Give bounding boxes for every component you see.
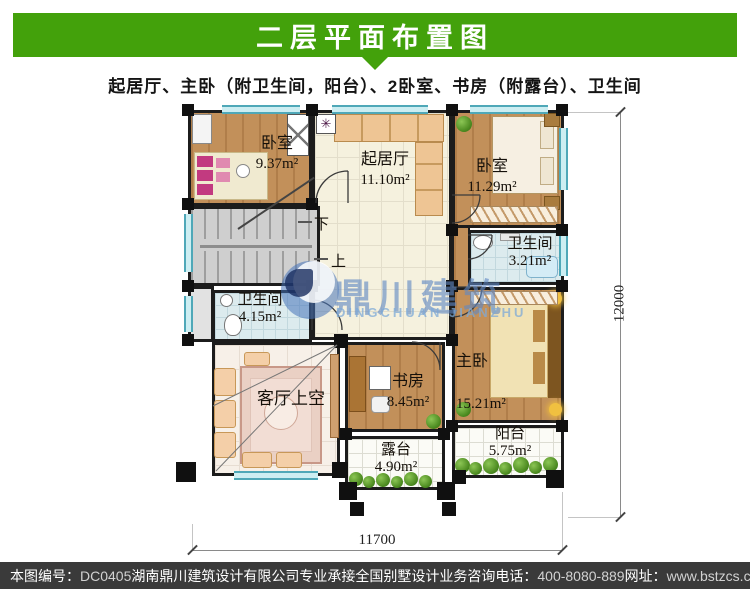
stair-tick-up [314,258,328,260]
header-banner: 二层平面布置图 [13,13,737,57]
watermark-logo [281,261,339,319]
page-canvas: 二层平面布置图 起居厅、主卧（附卫生间，阳台）、2卧室、书房（附露台）、卫生间 … [0,0,750,589]
dim-label-bottom: 11700 [347,532,407,549]
stair-tick-down [298,221,312,223]
footer-phone: 咨询电话：400-8080-889 [467,566,624,586]
footer-company: 湖南鼎川建筑设计有限公司专业承接全国别墅设计业务 [131,566,467,586]
footer-plan-number: 本图编号：DC0405 [10,566,131,586]
label-void-living: 客厅上空 [236,388,346,410]
footer-bar: 本图编号：DC0405 湖南鼎川建筑设计有限公司专业承接全国别墅设计业务 咨询电… [0,562,750,589]
page-title: 二层平面布置图 [256,16,494,55]
plan-summary-text: 起居厅、主卧（附卫生间，阳台）、2卧室、书房（附露台）、卫生间 [0,72,750,97]
watermark-en-text: DINGCHUAN JIANZHU [336,305,556,320]
stair-label-down: 下 [314,213,329,234]
door-arc [468,235,492,259]
footer-website: 网址：www.bstzcs.com [625,566,750,586]
label-bedroom-tr: 卧室 11.29m² [450,157,534,197]
label-living: 起居厅 11.10m² [335,150,435,190]
label-bath-right: 卫生间 3.21m² [494,236,566,271]
dim-extension [568,517,620,518]
header-pointer-triangle [362,57,388,70]
label-study: 书房 8.45m² [368,372,448,412]
label-terrace: 露台 4.90m² [356,442,436,477]
watermark-logo-swoosh [285,269,313,297]
label-bedroom-tl: 卧室 9.37m² [232,134,322,174]
label-balcony: 阳台 5.75m² [470,426,550,459]
door-arc [452,195,480,223]
dim-extension [562,492,563,550]
dim-label-right: 12000 [612,274,629,334]
dim-extension [568,112,620,113]
dim-line-bottom [192,550,562,551]
label-master: 主卧 15.21m² [448,352,522,414]
door-arc [412,342,440,370]
dim-extension [192,524,193,550]
